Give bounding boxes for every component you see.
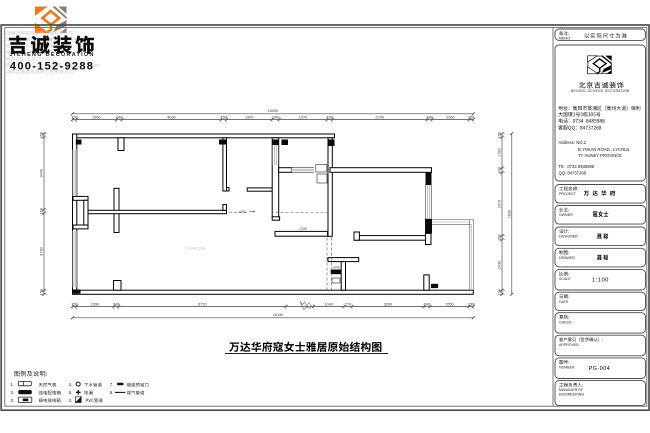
svg-text:B.YNXAN ROAD , LYCHLN: B.YNXAN ROAD , LYCHLN xyxy=(578,147,629,152)
svg-text:150: 150 xyxy=(498,234,502,240)
svg-text:1780: 1780 xyxy=(498,148,502,156)
svg-text:150: 150 xyxy=(221,115,227,119)
svg-text:3730: 3730 xyxy=(40,247,44,255)
svg-text:16090: 16090 xyxy=(268,109,279,113)
svg-text:2.47m² 2.9m: 2.47m² 2.9m xyxy=(186,247,205,251)
svg-text:150: 150 xyxy=(71,115,77,119)
svg-text:TY HUNEY PROVINCE: TY HUNEY PROVINCE xyxy=(578,153,622,158)
svg-text:1550: 1550 xyxy=(445,302,453,306)
svg-text:ENGINEERING: ENGINEERING xyxy=(559,392,584,396)
svg-text:150: 150 xyxy=(498,132,502,138)
svg-text:240: 240 xyxy=(498,167,502,173)
svg-text:1:100: 1:100 xyxy=(592,278,609,284)
svg-text:150: 150 xyxy=(326,115,332,119)
svg-text:3440: 3440 xyxy=(40,169,44,177)
svg-text:150: 150 xyxy=(468,115,474,119)
svg-text:2430: 2430 xyxy=(498,261,502,269)
svg-text:3.: 3. xyxy=(11,398,15,403)
svg-text:400-152-9288: 400-152-9288 xyxy=(10,60,94,72)
svg-text:7.: 7. xyxy=(110,382,114,387)
svg-text:1900: 1900 xyxy=(245,115,253,119)
svg-text:240: 240 xyxy=(116,115,122,119)
svg-text:3.: 3. xyxy=(69,398,73,403)
svg-text:Address: NO.2: Address: NO.2 xyxy=(559,140,587,145)
svg-text:150: 150 xyxy=(40,208,44,214)
svg-text:CHECK: CHECK xyxy=(559,320,572,324)
svg-text:7630: 7630 xyxy=(507,210,511,218)
svg-text:150: 150 xyxy=(71,302,77,306)
svg-text:PROJECT: PROJECT xyxy=(559,192,577,196)
svg-text:DESIGNER: DESIGNER xyxy=(559,235,578,239)
svg-text:PG-004: PG-004 xyxy=(589,366,611,372)
svg-text:≈200: ≈200 xyxy=(299,227,307,231)
svg-text:MEMO: MEMO xyxy=(559,37,570,41)
svg-text:OWNER: OWNER xyxy=(559,213,573,217)
svg-text:QQ: 84737268: QQ: 84737268 xyxy=(559,171,587,176)
svg-text:1560: 1560 xyxy=(92,115,100,119)
svg-text:6.: 6. xyxy=(110,390,114,395)
svg-text:1040: 1040 xyxy=(324,302,332,306)
svg-text:DATE: DATE xyxy=(559,300,569,304)
svg-text:5.: 5. xyxy=(69,390,73,395)
svg-text:NUMBER: NUMBER xyxy=(559,366,575,370)
svg-text:150: 150 xyxy=(40,289,44,295)
svg-text:150: 150 xyxy=(468,302,474,306)
svg-text:APPROVED: APPROVED xyxy=(559,343,579,347)
svg-text:≈200: ≈200 xyxy=(332,265,340,269)
svg-text:3200: 3200 xyxy=(384,302,392,306)
svg-text:16130: 16130 xyxy=(273,313,284,317)
svg-text:270: 270 xyxy=(345,302,351,306)
svg-text:240: 240 xyxy=(426,115,432,119)
svg-text:1.: 1. xyxy=(11,382,15,387)
svg-text:4.: 4. xyxy=(69,382,73,387)
svg-text:240: 240 xyxy=(272,115,278,119)
svg-text:150: 150 xyxy=(40,132,44,138)
svg-text:JICHENG DECORATION: JICHENG DECORATION xyxy=(10,52,95,58)
svg-text:DRAWER: DRAWER xyxy=(559,256,575,260)
svg-text:SCALE: SCALE xyxy=(559,277,571,281)
svg-text:6770: 6770 xyxy=(198,302,206,306)
svg-text:4030: 4030 xyxy=(167,115,175,119)
svg-text:1590: 1590 xyxy=(91,302,99,306)
svg-text:150: 150 xyxy=(498,289,502,295)
svg-text:1970: 1970 xyxy=(299,115,307,119)
svg-text:1560: 1560 xyxy=(446,115,454,119)
svg-text:240: 240 xyxy=(424,302,430,306)
svg-text:2.: 2. xyxy=(11,390,15,395)
svg-text:≈200: ≈200 xyxy=(238,210,246,214)
svg-text:2740: 2740 xyxy=(375,115,383,119)
svg-text:2970: 2970 xyxy=(498,200,502,208)
svg-text:BEIJING JICHENG DECORATION: BEIJING JICHENG DECORATION xyxy=(571,89,630,93)
svg-text:TE : 0734 8485988: TE : 0734 8485988 xyxy=(559,164,595,169)
svg-text:240: 240 xyxy=(113,302,119,306)
